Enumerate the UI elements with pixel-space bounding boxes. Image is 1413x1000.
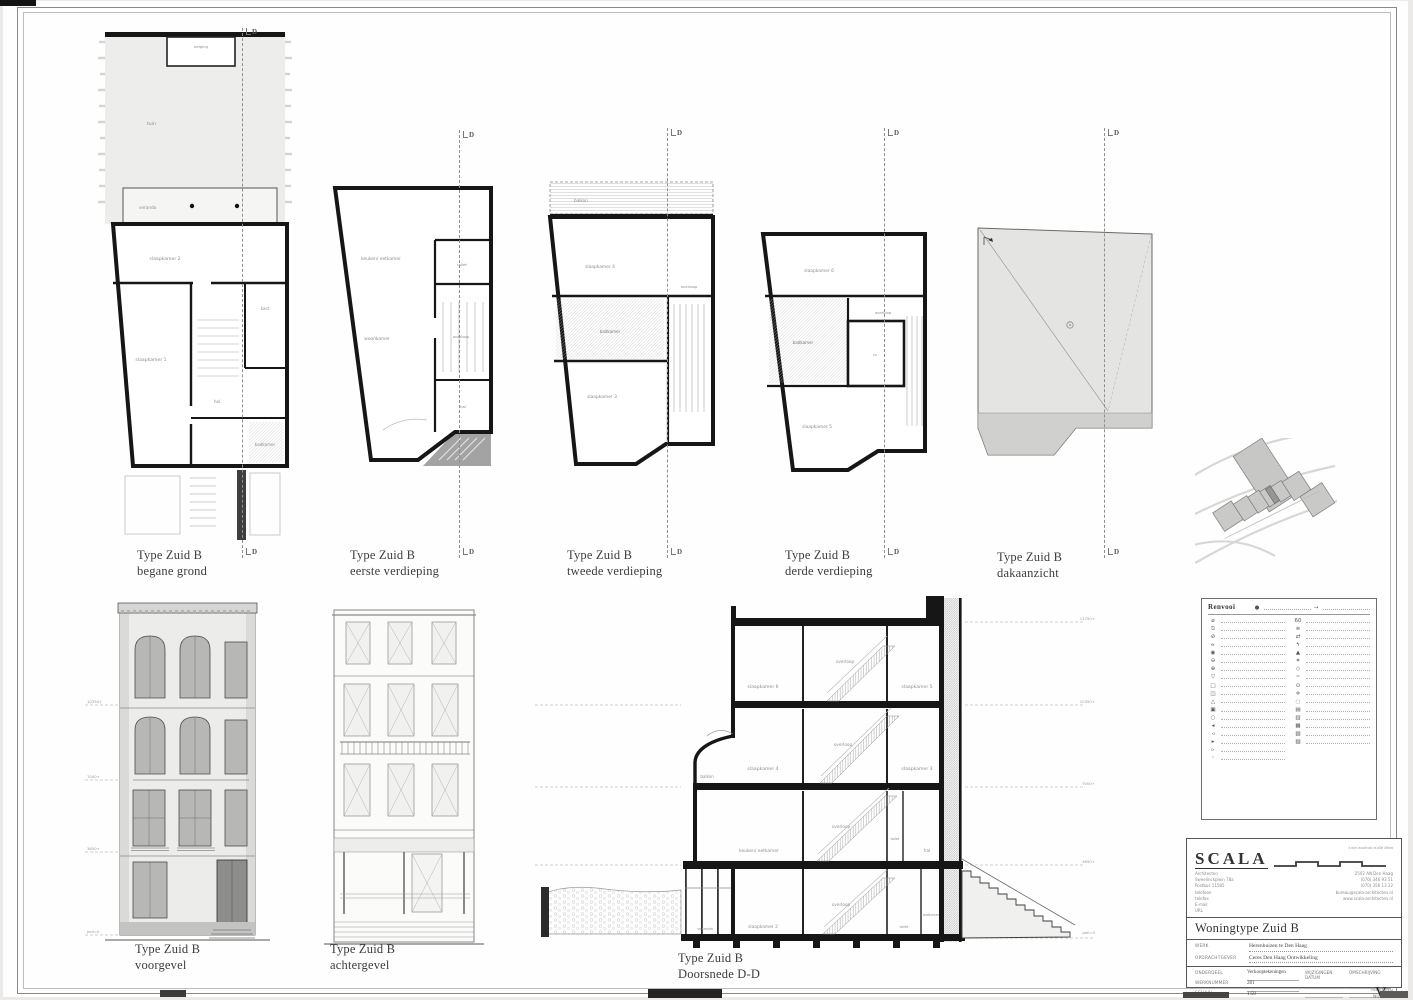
- wijzigingen-column: WIJZIGINGEN DATUM: [1305, 970, 1343, 1000]
- svg-text:badkamer: badkamer: [923, 913, 940, 917]
- scan-artifact: [1380, 991, 1408, 998]
- elevation-achtergevel: [312, 592, 497, 957]
- section-marker-d: D: [888, 548, 899, 556]
- svg-text:slaapkamer 3: slaapkamer 3: [587, 394, 617, 400]
- section-doorsnede: 13750+ 10350+ 7000+ 3650+ peil=0: [535, 588, 1100, 956]
- svg-text:overloop: overloop: [832, 902, 851, 907]
- legend-symbol-icon: ◇: [1293, 667, 1303, 673]
- legend-row: ◌: [1293, 698, 1370, 706]
- svg-text:3650+: 3650+: [87, 846, 100, 851]
- svg-text:veranda: veranda: [139, 205, 157, 210]
- svg-text:slaapkamer 2: slaapkamer 2: [748, 924, 778, 930]
- legend-symbol-icon: ~: [1293, 675, 1303, 681]
- svg-text:slaapkamer 2: slaapkamer 2: [149, 256, 180, 262]
- section-marker-d: D: [671, 548, 682, 556]
- scan-artifact: [0, 0, 36, 6]
- caption-voorgevel: Type Zuid Bvoorgevel: [135, 941, 200, 973]
- legend-row: ⦵: [1208, 642, 1285, 650]
- legend-symbol-icon: □: [1208, 684, 1218, 690]
- hatch-swatch-icon: ▨: [1293, 740, 1303, 746]
- drawing-title: Woningtype Zuid B: [1195, 921, 1393, 936]
- svg-text:overloop: overloop: [834, 742, 853, 747]
- legend-row: ~: [1293, 674, 1370, 682]
- legend-row: ⊙: [1293, 682, 1370, 690]
- legend-row: ◫: [1208, 690, 1285, 698]
- legend-symbol-icon: 60: [1293, 619, 1303, 625]
- hatch-swatch-icon: ▦: [1293, 724, 1303, 730]
- legend-column-right: 60 ≋ ⇄ ϟ ▲ ✶ ◇ ~ ⊙ ✛ ◌ ▤ ▥ ▦ ▧ ▨: [1293, 618, 1370, 764]
- legend-symbol-icon: ◃: [1208, 732, 1218, 738]
- caption-achtergevel: Type Zuid Bachtergevel: [330, 941, 395, 973]
- werknummer-value: 281: [1247, 981, 1299, 992]
- svg-text:slaapkamer 5: slaapkamer 5: [802, 424, 832, 430]
- scan-artifact: [648, 989, 722, 998]
- legend-row: ◉: [1208, 650, 1285, 658]
- legend-symbol-icon: ▲: [1293, 651, 1303, 657]
- legend-row: ▹: [1208, 747, 1285, 755]
- legend-symbol-icon: ▣: [1208, 708, 1218, 714]
- legend-row: □: [1208, 682, 1285, 690]
- legend-header-item: ⇢: [1311, 606, 1370, 612]
- legend-symbol-icon: ▹: [1208, 748, 1218, 754]
- section-line-d-4: [884, 128, 885, 558]
- caption-derde-verdieping: Type Zuid Bderde verdieping: [785, 547, 873, 579]
- svg-text:overloop: overloop: [836, 659, 855, 664]
- svg-text:overloop: overloop: [832, 824, 851, 829]
- legend-row: ⇄: [1293, 634, 1370, 642]
- svg-text:slaapkamer 4: slaapkamer 4: [747, 766, 778, 772]
- site-plan-map: [1195, 438, 1337, 566]
- section-marker-d: D: [888, 129, 899, 137]
- legend-row: ▧: [1293, 731, 1370, 739]
- svg-text:hal: hal: [460, 404, 466, 409]
- plan-derde-verdieping: slaapkamer 6 badkamer overloop cv slaapk…: [753, 226, 935, 472]
- legend-row: ⌀: [1208, 618, 1285, 626]
- svg-text:toilet: toilet: [900, 925, 909, 929]
- section-marker-d: D: [463, 131, 474, 139]
- scan-artifact: [160, 990, 186, 997]
- legend-row: ▲: [1293, 650, 1370, 658]
- legend-symbol-icon: ⦵: [1208, 643, 1218, 649]
- field-values-column: Verkooptekeningen 281 1:50 21 februari 2…: [1247, 970, 1299, 1000]
- legend-symbol-icon: ⊙: [1293, 684, 1303, 690]
- legend-row: ◦: [1208, 755, 1285, 763]
- svg-text:keuken/ eetkamer: keuken/ eetkamer: [739, 848, 779, 854]
- legend-box: Renvooi ● ⇢ ⌀ ⍉ ⊘ ⦵ ◉ ⊖ ⊕ ▽ □ ◫ △ ▣ ○ ◂ …: [1201, 598, 1377, 820]
- section-marker-d: D: [671, 129, 682, 137]
- legend-symbol-icon: ⊕: [1208, 667, 1218, 673]
- legend-symbol-icon: ≋: [1293, 627, 1303, 633]
- section-marker-d: D: [1108, 129, 1119, 137]
- svg-text:slaapkamer 3: slaapkamer 3: [901, 766, 932, 772]
- section-line-d-5: [1104, 128, 1105, 558]
- svg-text:toilet: toilet: [891, 837, 900, 841]
- onderdeel-value: Verkooptekeningen: [1247, 970, 1299, 981]
- legend-symbol-icon: ◉: [1208, 651, 1218, 657]
- legend-row: ✛: [1293, 690, 1370, 698]
- section-line-d-2: [459, 130, 460, 558]
- legend-symbol-icon: ◫: [1208, 692, 1218, 698]
- svg-text:7000+: 7000+: [87, 774, 100, 779]
- svg-text:slaapkamer 5: slaapkamer 5: [901, 684, 932, 690]
- logo-stepped-line: [1274, 857, 1386, 869]
- legend-column-left: ⌀ ⍉ ⊘ ⦵ ◉ ⊖ ⊕ ▽ □ ◫ △ ▣ ○ ◂ ◃ ▸ ▹ ◦: [1208, 618, 1285, 764]
- caption-dakaanzicht: Type Zuid Bdakaanzicht: [997, 549, 1062, 581]
- legend-symbol-icon: △: [1208, 700, 1218, 706]
- section-marker-d: D: [1108, 548, 1119, 556]
- legend-symbol-icon: ⊖: [1208, 659, 1218, 665]
- legend-row: ⊕: [1208, 666, 1285, 674]
- opdrachtgever-label: OPDRACHTGEVER: [1195, 955, 1245, 960]
- legend-row: 60: [1293, 618, 1370, 626]
- legend-row: △: [1208, 698, 1285, 706]
- title-block: ± niet maatvast in alle delen SCALA Arch…: [1186, 838, 1402, 988]
- plan-eerste-verdieping: keuken/ eetkamer woonkamer toilet overlo…: [323, 180, 503, 470]
- svg-text:peil=0: peil=0: [87, 929, 100, 934]
- legend-row: ▥: [1293, 715, 1370, 723]
- legend-symbol-icon: ◌: [1293, 700, 1303, 706]
- svg-text:slaapkamer 4: slaapkamer 4: [585, 264, 615, 270]
- werk-value: Herenhuizen te Den Haag: [1249, 943, 1393, 952]
- svg-text:3650+: 3650+: [1082, 859, 1095, 864]
- caption-doorsnede: Type Zuid BDoorsnede D-D: [678, 950, 760, 982]
- legend-row: ϟ: [1293, 642, 1370, 650]
- svg-text:10350+: 10350+: [87, 699, 102, 704]
- legend-symbol-icon: ϟ: [1293, 643, 1303, 649]
- svg-text:kast: kast: [261, 306, 270, 311]
- svg-text:slaapkamer 6: slaapkamer 6: [747, 684, 778, 690]
- legend-title: Renvooi: [1208, 603, 1252, 611]
- svg-text:badkamer: badkamer: [600, 329, 621, 334]
- legend-row: ▽: [1208, 674, 1285, 682]
- drawing-sheet: berging tuin veranda slaapkamer 2 slaapk…: [0, 0, 1413, 1000]
- legend-symbol-icon: ⇄: [1293, 635, 1303, 641]
- legend-row: ▤: [1293, 707, 1370, 715]
- schaal-value: 1:50: [1247, 992, 1299, 1000]
- legend-row: ▣: [1208, 707, 1285, 715]
- svg-text:hal: hal: [924, 848, 930, 853]
- legend-symbol-icon: ▸: [1208, 740, 1218, 746]
- legend-row: ◃: [1208, 731, 1285, 739]
- section-marker-d: D: [246, 548, 257, 556]
- hatch-swatch-icon: ▧: [1293, 732, 1303, 738]
- svg-text:overloop: overloop: [453, 334, 470, 339]
- legend-row: ▸: [1208, 739, 1285, 747]
- legend-row: ✶: [1293, 658, 1370, 666]
- svg-text:berging: berging: [194, 45, 208, 49]
- svg-text:balkon: balkon: [700, 774, 714, 779]
- svg-text:tuin: tuin: [147, 121, 156, 127]
- svg-text:peil=0: peil=0: [1083, 930, 1096, 935]
- caption-eerste-verdieping: Type Zuid Beerste verdieping: [350, 547, 439, 579]
- caption-tweede-verdieping: Type Zuid Btweede verdieping: [567, 547, 662, 579]
- plan-tweede-verdieping: slaapkamer 4 badkamer overloop slaapkame…: [538, 176, 726, 468]
- legend-header-item: ●: [1252, 606, 1311, 612]
- werk-label: WERK: [1195, 943, 1245, 948]
- legend-row: ◇: [1293, 666, 1370, 674]
- legend-row: ▦: [1293, 723, 1370, 731]
- svg-text:7000+: 7000+: [1082, 781, 1095, 786]
- svg-text:veranda: veranda: [697, 926, 713, 931]
- legend-symbol-icon: ▽: [1208, 675, 1218, 681]
- legend-row: ≋: [1293, 626, 1370, 634]
- legend-symbol-icon: ✛: [1293, 692, 1303, 698]
- svg-text:hal: hal: [214, 399, 220, 404]
- dot-icon: ●: [1252, 606, 1262, 612]
- legend-row: ⊘: [1208, 634, 1285, 642]
- caption-begane-grond: Type Zuid Bbegane grond: [137, 547, 207, 579]
- svg-text:slaapkamer 1: slaapkamer 1: [135, 357, 166, 363]
- section-line-d-3: [667, 128, 668, 558]
- svg-text:woonkamer: woonkamer: [364, 336, 390, 342]
- legend-row: ◂: [1208, 723, 1285, 731]
- legend-row: ⊖: [1208, 658, 1285, 666]
- opdrachtgever-value: Ceres Den Haag Ontwikkeling: [1249, 955, 1393, 964]
- svg-text:badkamer: badkamer: [793, 340, 814, 345]
- legend-row: ⍉: [1208, 626, 1285, 634]
- hatch-swatch-icon: ▤: [1293, 708, 1303, 714]
- section-marker-d: D: [463, 548, 474, 556]
- legend-symbol-icon: ⊘: [1208, 635, 1218, 641]
- legend-symbol-icon: ⌀: [1208, 619, 1218, 625]
- svg-text:13750+: 13750+: [1080, 616, 1095, 621]
- elevation-voorgevel: 10350+ 7000+ 3650+ peil=0: [85, 590, 290, 962]
- plan-begane-grond: berging tuin veranda slaapkamer 2 slaapk…: [95, 28, 300, 548]
- svg-text:badkamer: badkamer: [255, 442, 276, 447]
- svg-text:10350+: 10350+: [1080, 699, 1095, 704]
- legend-symbol-icon: ○: [1208, 716, 1218, 722]
- svg-text:slaapkamer 6: slaapkamer 6: [804, 268, 834, 274]
- section-marker-d: D: [246, 28, 257, 36]
- legend-row: ○: [1208, 715, 1285, 723]
- legend-symbol-icon: ⍉: [1208, 627, 1218, 633]
- svg-text:keuken/ eetkamer: keuken/ eetkamer: [361, 256, 401, 262]
- svg-text:balkon: balkon: [574, 198, 588, 203]
- legend-header: Renvooi ● ⇢: [1208, 603, 1370, 615]
- legend-symbol-icon: ◦: [1208, 756, 1218, 762]
- legend-symbol-icon: ◂: [1208, 724, 1218, 730]
- section-line-d-1: [242, 28, 243, 558]
- plan-dakaanzicht: [958, 213, 1166, 471]
- legend-symbol-icon: ✶: [1293, 659, 1303, 665]
- hatch-swatch-icon: ▥: [1293, 716, 1303, 722]
- scan-artifact: [1183, 992, 1229, 998]
- svg-text:overloop: overloop: [681, 284, 698, 289]
- firm-logo: SCALA: [1195, 850, 1268, 869]
- firm-address: Architecten Sweelinckplein 78a Postbus 1…: [1195, 871, 1393, 914]
- arrow-icon: ⇢: [1311, 606, 1321, 612]
- legend-row: ▨: [1293, 739, 1370, 747]
